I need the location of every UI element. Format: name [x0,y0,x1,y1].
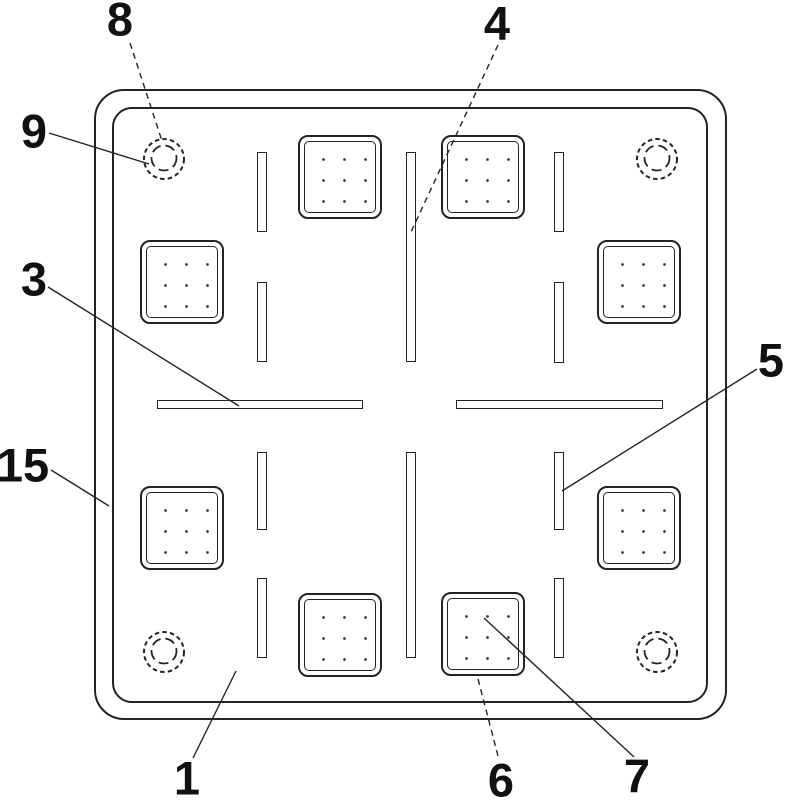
pad-square-right-lower [597,486,681,570]
pad-dot-texture [603,492,675,564]
ref-label-9: 9 [21,108,47,155]
pad-square-left-lower [140,486,224,570]
vertical-slot [554,452,564,530]
pad-dot-texture [304,599,376,671]
pad-square-top-center-right [441,135,525,219]
ref-label-15: 15 [0,442,49,489]
pad-square-top-center-left [298,135,382,219]
ref-label-1: 1 [174,755,200,800]
pad-dot-texture [447,598,519,670]
vertical-slot [554,282,564,363]
vertical-slot-center-bottom [406,452,416,658]
ref-label-8: 8 [107,0,133,43]
pad-square-bottom-center-left [298,593,382,677]
pad-dot-texture [447,141,519,213]
pad-dot-texture [603,246,675,318]
pad-dot-texture [146,492,218,564]
ref-label-7: 7 [624,753,650,800]
ref-label-3: 3 [21,256,47,303]
ref-label-6: 6 [488,757,514,800]
vertical-slot [554,578,564,658]
pad-square-left-upper [140,240,224,324]
vertical-slot [257,152,267,232]
horizontal-slot-left [157,400,363,409]
vertical-slot [554,152,564,232]
vertical-slot [257,282,267,362]
pad-square-right-upper [597,240,681,324]
ref-label-4: 4 [484,0,510,47]
patent-figure-canvas: 8 9 3 4 5 15 1 6 7 [0,0,787,800]
pad-dot-texture [146,246,218,318]
vertical-slot [257,578,267,658]
ref-label-5: 5 [758,337,784,384]
horizontal-slot-right [456,400,663,409]
pad-square-bottom-center-right [441,592,525,676]
vertical-slot [257,452,267,530]
pad-dot-texture [304,141,376,213]
vertical-slot-center-top [406,152,416,362]
